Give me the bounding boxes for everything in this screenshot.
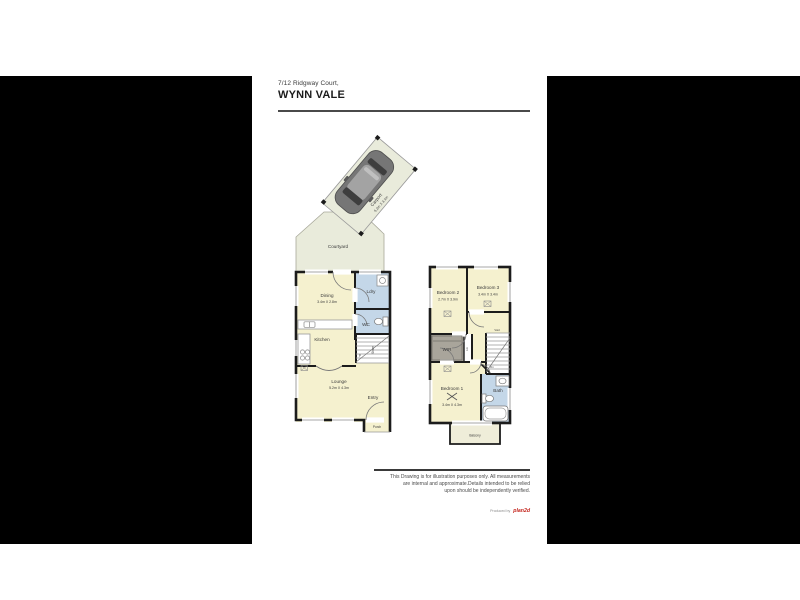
bedroom3-dims: 3.4m X 3.4m — [478, 293, 498, 297]
footer-divider — [374, 469, 530, 471]
down-label: Dn — [490, 365, 494, 369]
disclaimer-line: This Drawing is for illustration purpose… — [310, 474, 530, 481]
void-label: Void — [494, 328, 500, 332]
linen-label: Lin — [465, 347, 469, 351]
laundry-label: Ldry — [367, 289, 377, 294]
producer-credit: Produced byplan2d — [330, 499, 530, 517]
pantry-label: P — [359, 354, 361, 358]
courtyard-label: Courtyard — [328, 244, 349, 249]
bedroom2-dims: 2.7m X 3.9m — [438, 298, 458, 302]
vanity-icon — [496, 376, 509, 386]
wc-label: WC — [362, 322, 370, 327]
dining-label: Dining — [320, 293, 333, 298]
disclaimer-line: are internal and approximate.Details int… — [310, 481, 530, 488]
toilet-icon — [482, 394, 494, 403]
bath-label: Bath — [493, 388, 503, 393]
upper-floor-plan: Void Dn — [428, 265, 513, 445]
wir-label: WIR — [443, 347, 453, 352]
washer-icon — [377, 275, 388, 286]
disclaimer-line: upon should be independently verified. — [310, 488, 530, 495]
ground-floor-plan: Store P — [294, 269, 391, 432]
bedroom1-dims: 3.4m X 4.3m — [442, 403, 462, 407]
lounge-dims: 5.2m X 4.3m — [329, 386, 349, 390]
bedroom2-label: Bedroom 2 — [437, 290, 460, 295]
bedroom3-label: Bedroom 3 — [477, 285, 500, 290]
bedroom1-label: Bedroom 1 — [441, 386, 464, 391]
porch-label: Porch — [373, 425, 382, 429]
balcony-label: Balcony — [469, 434, 481, 438]
bathtub-icon — [483, 406, 508, 421]
store-label: Store — [371, 346, 375, 354]
entry-label: Entry — [368, 395, 379, 400]
producer-logo: plan2d — [513, 508, 530, 514]
produced-by-label: Produced by — [490, 509, 510, 513]
page: 7/12 Ridgway Court, WYNN VALE Courtyard — [0, 0, 800, 600]
dining-dims: 3.4m X 2.8m — [317, 300, 337, 304]
kitchen-label: Kitchen — [314, 337, 330, 342]
lounge-label: Lounge — [331, 379, 347, 384]
disclaimer: This Drawing is for illustration purpose… — [310, 474, 530, 494]
